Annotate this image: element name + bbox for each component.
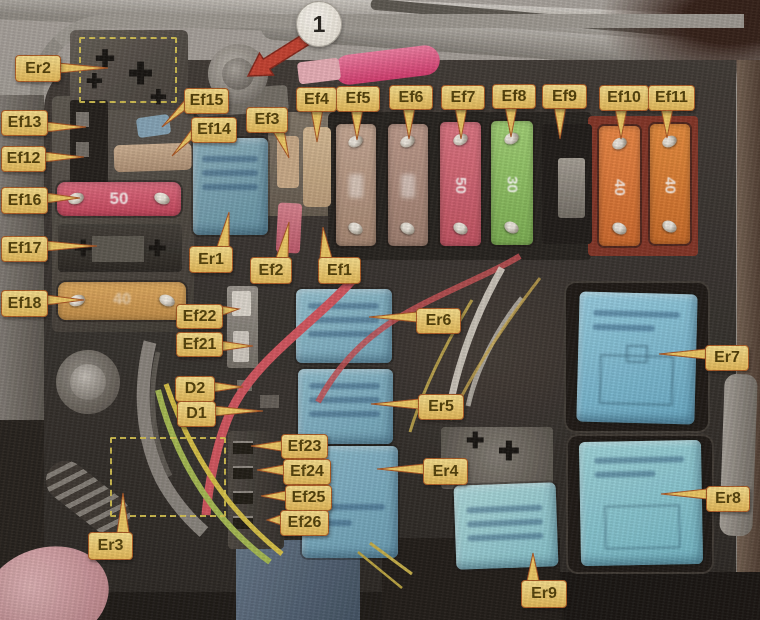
connector-ef24-pin [233, 466, 253, 479]
relay-circuit-emboss [604, 504, 681, 549]
connector-d1-pin [260, 395, 279, 408]
connector-pin [76, 112, 89, 127]
fuse-ef3 [277, 136, 299, 188]
ef17-clip-icon: ✚ [74, 238, 92, 260]
relay-er4 [302, 446, 398, 558]
er2-dashed-outline [79, 37, 177, 103]
relay-text-line [308, 317, 379, 323]
fuse-ef21 [233, 331, 249, 362]
relay-er7 [576, 291, 697, 424]
relay-text-line [202, 170, 258, 176]
relay-text-line [309, 411, 379, 417]
relay-text-line [309, 383, 379, 389]
socket-terminal-icon: ✚ [466, 430, 484, 452]
relay-text-line [202, 184, 258, 190]
item-marker-1: 1 [296, 1, 342, 47]
connector-ef25-pin [233, 491, 253, 504]
relay-circuit-emboss [626, 345, 648, 364]
connector-d2-pin [237, 380, 252, 391]
fuse-ef6 [388, 124, 428, 246]
left-outer-wall [0, 95, 44, 425]
fuse-ef5 [336, 124, 376, 246]
relay-text-line [314, 520, 352, 526]
relay-er1 [193, 138, 268, 235]
fuse-ef7-rating: 50 [452, 165, 469, 206]
relay-text-line [308, 331, 379, 337]
relay-socket-empty [441, 427, 553, 489]
relay-text-line [467, 505, 543, 514]
relay-text-line [594, 471, 655, 478]
fuse-ef10: 40 [599, 126, 640, 246]
fuse-ef14 [114, 143, 193, 173]
fuse-symbol [349, 174, 363, 198]
relay-text-line [594, 456, 684, 464]
fuse-ef18-rating: 40 [58, 291, 186, 309]
fuse-ef11: 40 [650, 124, 690, 244]
relay-er8 [579, 440, 703, 566]
relay-er5 [298, 369, 393, 444]
relay-text-line [202, 156, 258, 162]
fuse-ef11-rating: 40 [662, 165, 679, 205]
fuse-ef16-rating: 50 [57, 189, 181, 209]
fuse-ef4 [303, 127, 331, 207]
fuse-holder-ef17-center [92, 236, 144, 262]
fuse-symbol [401, 174, 415, 198]
ground-bolt-nut [70, 364, 106, 400]
relay-text-line [314, 504, 385, 510]
ef17-clip-icon: ✚ [148, 238, 166, 260]
relay-text-line [593, 310, 680, 318]
connector-ef23-pin [233, 441, 253, 454]
connector-ef9-clip [558, 158, 585, 218]
fuse-ef10-rating: 40 [611, 167, 628, 208]
fuse-ef7: 50 [440, 122, 481, 246]
relay-text-line [467, 519, 543, 528]
fuse-ef8-rating: 30 [504, 163, 521, 205]
bottom-right-corner [560, 572, 760, 620]
fuse-ef2 [276, 202, 303, 253]
er3-dashed-outline [110, 437, 226, 517]
socket-terminal-icon: ✚ [498, 438, 520, 464]
bolt-item-1-center [222, 58, 254, 90]
fuse-box-photo: ✚ ✚ ✚ ✚ 50 ✚ ✚ 40 50 30 [0, 0, 760, 620]
relay-er6 [296, 289, 392, 363]
fuse-ef22 [232, 291, 251, 316]
relay-er9 [454, 482, 559, 570]
relay-text-line [309, 397, 379, 403]
fuse-ef16: 50 [57, 182, 181, 216]
fuse-ef18: 40 [58, 282, 186, 320]
connector-pin [76, 142, 89, 157]
relay-text-line [593, 324, 654, 332]
fuse-ef8: 30 [491, 121, 533, 245]
connector-ef26-pin [233, 516, 253, 529]
relay-text-line [308, 303, 379, 309]
side-clip-handle [719, 373, 758, 536]
relay-text-line [468, 533, 544, 542]
